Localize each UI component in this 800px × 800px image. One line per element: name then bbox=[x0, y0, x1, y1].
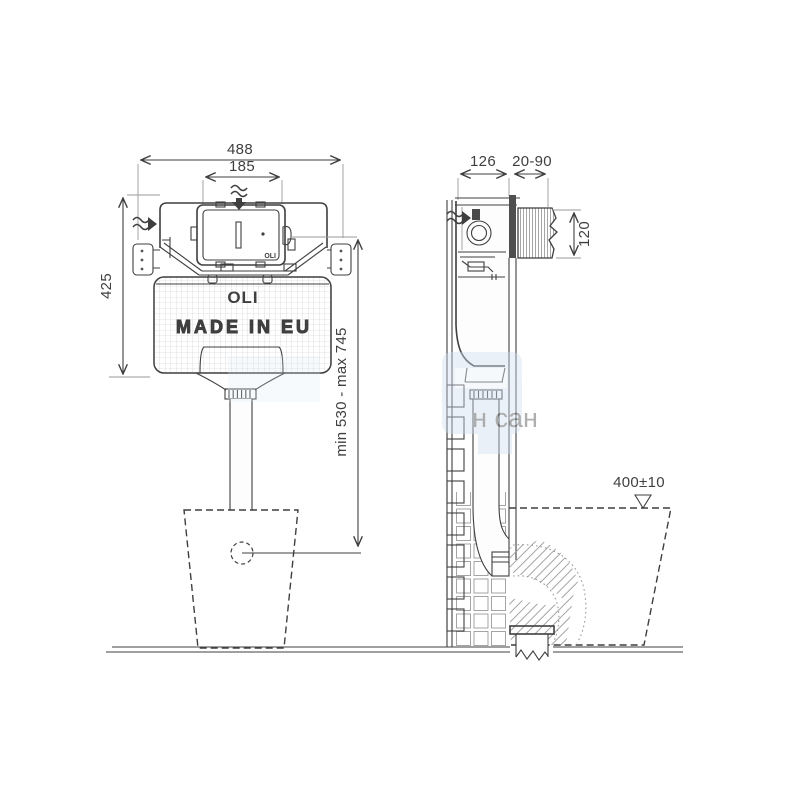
flush-plate-access-box: OLI bbox=[191, 202, 295, 267]
dim-label-126: 126 bbox=[470, 153, 496, 170]
dim-wall-finish: 20-90 bbox=[512, 153, 552, 207]
dim-shaft-height: 120 bbox=[552, 210, 593, 258]
water-flow-down-icon bbox=[231, 186, 247, 211]
site-watermark: н сан bbox=[228, 352, 538, 454]
dim-label-min-max: min 530 - max 745 bbox=[333, 327, 350, 456]
tank-logo-text: OLI bbox=[227, 288, 258, 307]
panel-logo-text: OLI bbox=[264, 253, 276, 260]
dim-label-20-90: 20-90 bbox=[512, 153, 552, 170]
dim-label-185: 185 bbox=[229, 158, 255, 175]
inlet-connector bbox=[472, 209, 480, 220]
dim-cistern-depth: 126 bbox=[458, 153, 509, 200]
technical-drawing-page: 488 185 bbox=[0, 0, 800, 800]
water-flow-left-icon bbox=[133, 217, 157, 231]
made-in-eu-text: MADE IN EU bbox=[176, 317, 312, 337]
cistern-installation-drawing: 488 185 bbox=[0, 0, 800, 800]
dim-label-400: 400±10 bbox=[613, 474, 665, 491]
dim-label-425: 425 bbox=[98, 273, 115, 299]
side-view: 126 20-90 bbox=[106, 153, 683, 660]
toilet-bowl-front bbox=[184, 510, 361, 648]
dim-label-488: 488 bbox=[227, 141, 253, 158]
wall-finish-block bbox=[518, 208, 557, 258]
mounting-bracket-right bbox=[327, 244, 351, 275]
plate-pin bbox=[261, 232, 264, 235]
level-mark-icon bbox=[635, 495, 651, 508]
floor-line bbox=[106, 647, 683, 652]
plate-slot bbox=[236, 222, 241, 248]
mounting-bracket-left bbox=[133, 244, 160, 275]
bowl-trapway bbox=[509, 540, 586, 645]
dim-label-120: 120 bbox=[576, 221, 593, 247]
watermark-text: н сан bbox=[472, 403, 538, 433]
